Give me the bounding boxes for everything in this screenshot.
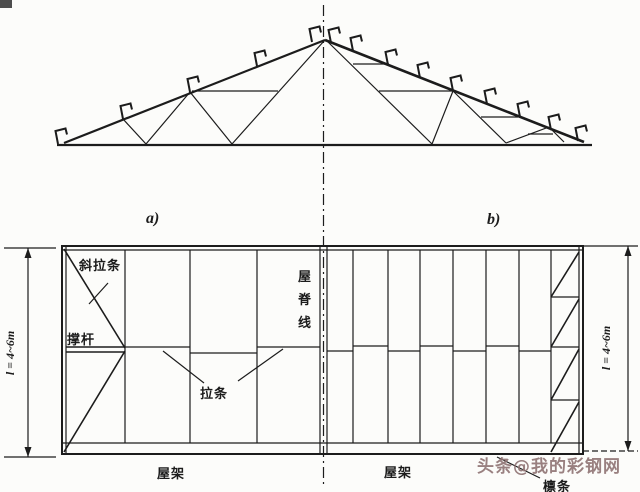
- panel-a-label: a): [146, 210, 159, 228]
- scan-artifact: [0, 0, 12, 8]
- truss-and-plan-line-drawing: [0, 0, 640, 492]
- panel-b-label: b): [487, 211, 500, 229]
- roof-truss-label-right: 屋架: [384, 462, 412, 481]
- roof-truss-label-left: 屋架: [157, 463, 185, 482]
- truss-elevation: [56, 27, 593, 146]
- purlin-label: 檩条: [543, 476, 571, 492]
- diagonal-tie-label: 斜拉条: [79, 255, 121, 274]
- ridge-line-label: 屋脊线: [297, 266, 312, 335]
- strut-label: 撑杆: [67, 329, 95, 348]
- span-dimension-left: l = 4~6m: [3, 317, 19, 389]
- leader-lines: [89, 283, 540, 478]
- watermark-text: 头条@我的彩钢网: [477, 452, 621, 477]
- span-dimension-right: l = 4~6m: [599, 312, 615, 384]
- roof-plan: [62, 246, 583, 454]
- roof-truss-purlin-figure: a) b) 斜拉条 撑杆 屋脊线 拉条 屋架 屋架 檩条 l = 4~6m l …: [0, 0, 640, 492]
- tie-rod-label: 拉条: [200, 383, 228, 402]
